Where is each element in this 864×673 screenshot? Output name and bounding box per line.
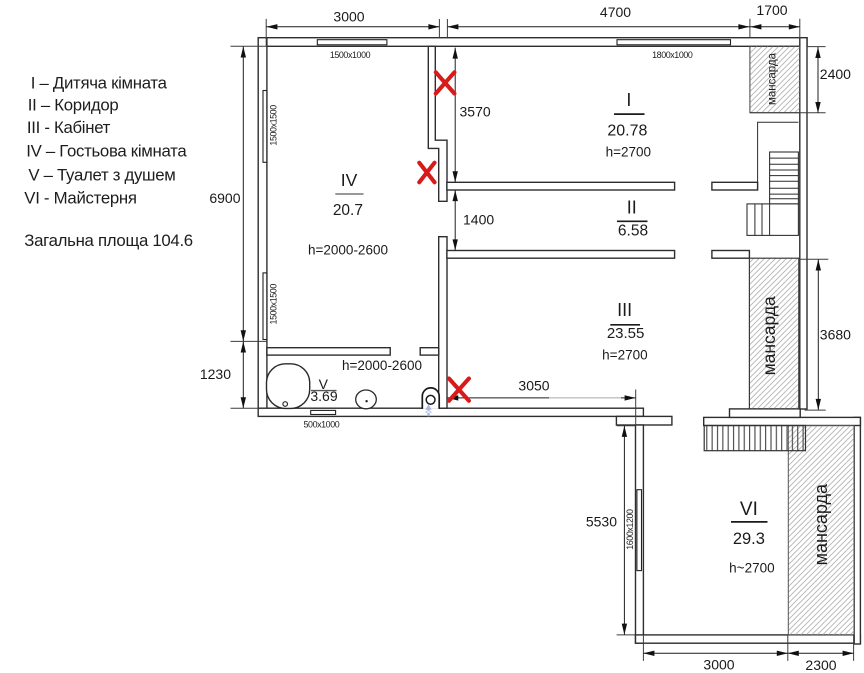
- svg-text:мансарда: мансарда: [767, 52, 779, 105]
- svg-text:4700: 4700: [600, 4, 631, 20]
- svg-text:Загальна площа 104.6: Загальна площа 104.6: [24, 231, 193, 250]
- svg-text:III - Кабінет: III - Кабінет: [27, 118, 111, 137]
- svg-text:h~2700: h~2700: [729, 561, 774, 576]
- svg-text:1400: 1400: [463, 212, 494, 228]
- svg-text:мансарда: мансарда: [759, 296, 779, 375]
- svg-text:3680: 3680: [820, 326, 851, 342]
- svg-text:h=2700: h=2700: [606, 145, 651, 160]
- svg-text:3050: 3050: [518, 377, 549, 393]
- svg-text:h=2000-2600: h=2000-2600: [308, 243, 388, 258]
- svg-text:23.55: 23.55: [607, 325, 645, 342]
- svg-text:мансарда: мансарда: [811, 483, 831, 565]
- svg-text:I – Дитяча кімната: I – Дитяча кімната: [31, 73, 168, 92]
- svg-text:1500x1000: 1500x1000: [330, 50, 371, 60]
- svg-text:I: I: [626, 90, 631, 110]
- svg-text:h=2700: h=2700: [602, 348, 647, 363]
- svg-text:20.7: 20.7: [333, 202, 363, 219]
- svg-text:6.58: 6.58: [618, 223, 648, 240]
- svg-text:3000: 3000: [333, 9, 364, 25]
- svg-text:II – Коридор: II – Коридор: [28, 96, 119, 115]
- svg-text:1700: 1700: [756, 2, 787, 18]
- svg-text:2300: 2300: [805, 657, 836, 673]
- svg-text:VI - Майстерня: VI - Майстерня: [24, 188, 136, 207]
- svg-text:3570: 3570: [460, 104, 491, 120]
- svg-text:h=2000-2600: h=2000-2600: [342, 358, 422, 373]
- svg-text:IV – Гостьова кімната: IV – Гостьова кімната: [26, 142, 187, 161]
- svg-text:5530: 5530: [586, 514, 617, 530]
- svg-text:1230: 1230: [200, 366, 231, 382]
- svg-text:V – Туалет з душем: V – Туалет з душем: [28, 165, 175, 184]
- svg-text:VI: VI: [740, 499, 758, 520]
- svg-text:1500x1500: 1500x1500: [269, 105, 279, 146]
- svg-text:II: II: [627, 198, 637, 218]
- svg-text:500x1000: 500x1000: [304, 420, 340, 430]
- svg-text:IV: IV: [341, 170, 358, 190]
- svg-text:6900: 6900: [209, 190, 240, 206]
- svg-text:III: III: [617, 300, 632, 320]
- svg-text:20.78: 20.78: [607, 123, 647, 140]
- svg-text:3.69: 3.69: [310, 388, 337, 404]
- svg-text:29.3: 29.3: [733, 530, 765, 548]
- svg-text:1500x1500: 1500x1500: [269, 284, 279, 325]
- svg-text:1800x1000: 1800x1000: [652, 50, 693, 60]
- svg-text:2400: 2400: [820, 66, 851, 82]
- svg-text:3000: 3000: [703, 657, 734, 673]
- svg-text:1600x1200: 1600x1200: [625, 509, 635, 550]
